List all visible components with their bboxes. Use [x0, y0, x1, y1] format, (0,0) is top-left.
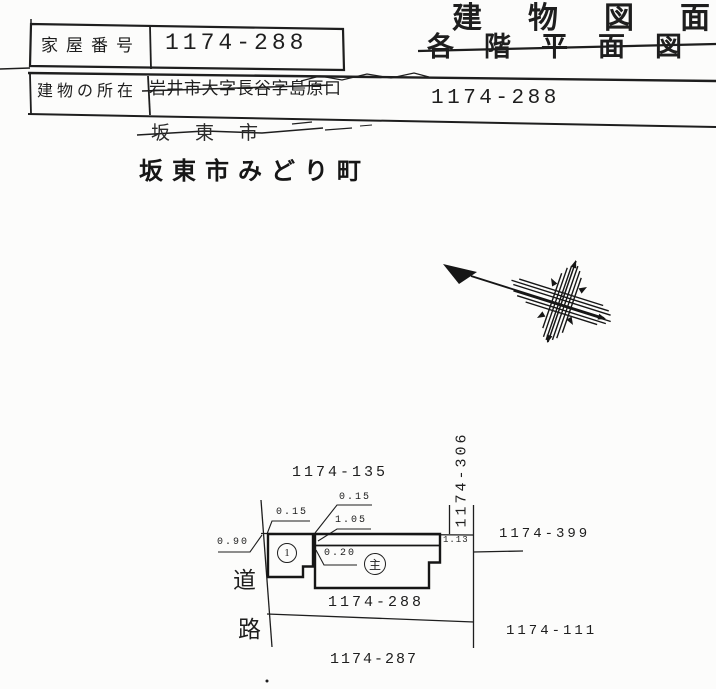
- dimension-eave-strip: 1.05: [335, 516, 367, 526]
- dimension-annex-top: 0.15: [276, 508, 308, 518]
- leader-0-15-annex: [267, 521, 310, 534]
- north-arrow-head: [443, 264, 477, 284]
- parcel-label-north: 1174-135: [292, 465, 388, 480]
- east-branch-line: [473, 551, 523, 552]
- document-title-line2-struck: 各階平面図: [427, 34, 712, 61]
- road-boundary-line: [261, 500, 272, 647]
- parcel-label-south: 1174-287: [330, 652, 418, 667]
- stray-ink-dot: [266, 680, 269, 683]
- house-number-label: 家屋番号: [41, 37, 141, 54]
- main-building-circled-mark: 主: [364, 553, 386, 575]
- document-line-art: [0, 0, 716, 689]
- dimension-gap: 0.20: [324, 549, 356, 559]
- north-arrow-compass-icon: [443, 259, 615, 344]
- stamp-scribble-dash-2: [325, 128, 352, 130]
- building-location-label: 建物の所在: [37, 84, 137, 100]
- annex-building-circled-mark: 1: [277, 543, 297, 563]
- parcel-boundaries: [261, 500, 523, 648]
- road-label-char-2: 路: [238, 618, 261, 641]
- parcel-label-subject: 1174-288: [328, 595, 424, 610]
- parcel-label-southeast: 1174-111: [506, 624, 597, 638]
- stamp-scribble-dash-1: [292, 122, 312, 124]
- new-address-stamp: 坂東市みどり町: [139, 160, 370, 184]
- north-arrow-shaft: [471, 276, 604, 318]
- stamp-scribble-dash-3: [360, 125, 372, 126]
- location-lot-number: 1174-288: [431, 88, 560, 109]
- scanned-building-plan-document: 建物図面 各階平面図 家屋番号 1174-288 建物の所在 岩井市大字長谷字島…: [0, 0, 716, 689]
- parcel-label-east-strip-vertical: 1174-306: [455, 432, 470, 528]
- building-outlines: [268, 534, 440, 588]
- old-address-struck-text: 岩井市大字長谷字島原口: [149, 80, 342, 97]
- south-boundary-line: [267, 614, 474, 622]
- location-row-top-rule: [28, 73, 716, 81]
- left-margin-line: [0, 68, 30, 69]
- parcel-label-northeast: 1174-399: [499, 527, 590, 541]
- dimension-right-offset: 1.13: [443, 536, 469, 545]
- road-label-char-1: 道: [233, 569, 256, 592]
- document-title-line1: 建物図面: [452, 4, 716, 34]
- old-city-stamp-struck: 坂東市: [151, 124, 283, 143]
- house-number-divider: [150, 26, 151, 69]
- location-row-left-edge: [30, 74, 31, 114]
- compass-hatch-band-a: [507, 277, 615, 328]
- dimension-left-offset: 0.90: [217, 538, 249, 548]
- dimension-main-top: 0.15: [339, 493, 371, 503]
- house-number-value: 1174-288: [165, 32, 307, 55]
